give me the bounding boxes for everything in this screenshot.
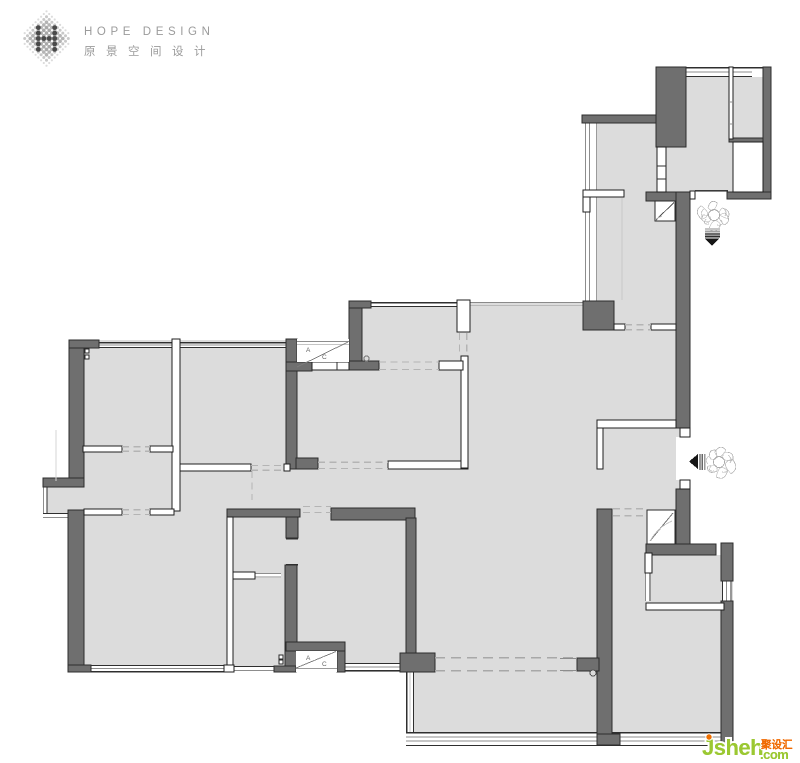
svg-text:聚设汇: 聚设汇 [760,738,793,751]
svg-text:A: A [306,347,311,354]
svg-text:A: A [306,655,311,662]
svg-text:C: C [322,354,327,361]
svg-text:C: C [322,661,327,668]
